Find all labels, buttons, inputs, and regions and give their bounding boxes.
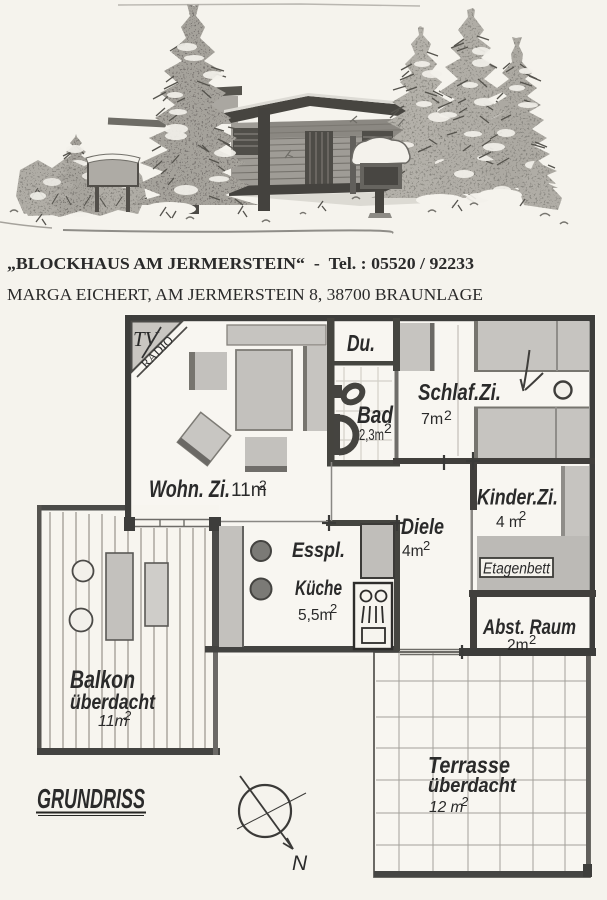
svg-text:2m: 2m [507, 637, 529, 654]
svg-text:Du.: Du. [347, 330, 375, 356]
svg-text:2: 2 [330, 601, 337, 616]
svg-text:2: 2 [259, 477, 267, 493]
svg-text:2: 2 [460, 794, 469, 809]
svg-text:Wohn. Zi.: Wohn. Zi. [149, 476, 230, 503]
svg-text:2: 2 [423, 538, 430, 553]
svg-text:7m: 7m [421, 411, 443, 428]
svg-text:Etagenbett: Etagenbett [483, 561, 551, 578]
svg-text:„BLOCKHAUS AM JERMERSTEIN“ -: „BLOCKHAUS AM JERMERSTEIN“ - Tel. : 0552… [7, 254, 474, 273]
svg-text:2: 2 [123, 708, 132, 723]
svg-text:MARGA EICHERT, AM JERMERSTEIN: MARGA EICHERT, AM JERMERSTEIN 8, 38700 B… [7, 285, 483, 304]
svg-text:2,3m: 2,3m [359, 427, 384, 444]
svg-text:Schlaf.Zi.: Schlaf.Zi. [418, 379, 501, 405]
svg-text:2: 2 [519, 508, 526, 523]
svg-text:2: 2 [529, 632, 536, 647]
svg-text:GRUNDRISS: GRUNDRISS [37, 783, 145, 814]
svg-text:4 m: 4 m [496, 514, 522, 531]
svg-text:5,5m: 5,5m [298, 607, 332, 624]
svg-text:4m: 4m [402, 543, 424, 560]
svg-text:12 m: 12 m [429, 799, 464, 816]
svg-text:2: 2 [384, 420, 392, 436]
svg-text:Kinder.Zi.: Kinder.Zi. [477, 485, 558, 510]
svg-text:Küche: Küche [295, 577, 342, 600]
svg-text:N: N [292, 852, 308, 875]
svg-text:2: 2 [444, 407, 452, 423]
svg-text:überdacht: überdacht [428, 774, 517, 797]
svg-text:Esspl.: Esspl. [292, 539, 345, 562]
svg-text:überdacht: überdacht [70, 690, 156, 714]
svg-text:Diele: Diele [401, 514, 444, 539]
